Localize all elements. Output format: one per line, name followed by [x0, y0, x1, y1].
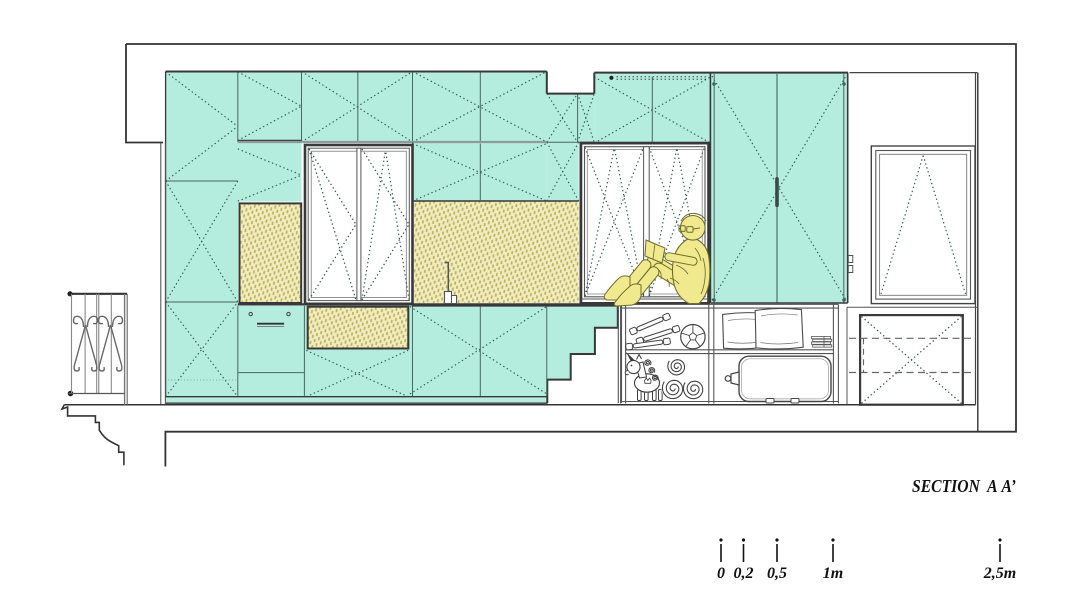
svg-text:0,2: 0,2 [734, 565, 754, 582]
svg-text:2,5m: 2,5m [983, 565, 1016, 582]
svg-text:SECTION A A’: SECTION A A’ [912, 476, 1016, 496]
svg-text:1m: 1m [823, 565, 843, 582]
svg-text:0: 0 [717, 565, 725, 582]
svg-text:0,5: 0,5 [767, 565, 787, 582]
